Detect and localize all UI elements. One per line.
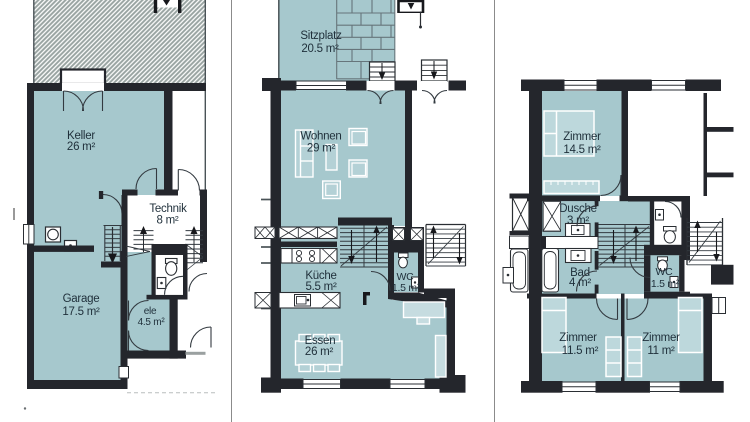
svg-text:Zimmer: Zimmer [642,332,680,344]
svg-text:29 m²: 29 m² [307,143,336,155]
svg-text:20.5 m²: 20.5 m² [301,43,339,55]
svg-text:Technik: Technik [149,203,187,215]
svg-text:Zimmer: Zimmer [559,332,597,344]
svg-text:Sitzplatz: Sitzplatz [300,30,342,42]
svg-text:11 m²: 11 m² [647,345,675,357]
svg-text:Garage: Garage [63,293,100,305]
svg-text:8 m²: 8 m² [157,215,179,227]
svg-text:Wohnen: Wohnen [300,131,341,143]
svg-text:4.5 m²: 4.5 m² [138,317,166,328]
svg-text:1.5 m²: 1.5 m² [651,278,680,290]
svg-text:WC: WC [656,266,674,278]
svg-text:1.5 m²: 1.5 m² [392,282,421,294]
svg-text:Dusche: Dusche [559,203,597,215]
svg-text:26 m²: 26 m² [67,141,96,153]
svg-text:ele: ele [144,306,157,317]
svg-text:Zimmer: Zimmer [563,131,601,143]
svg-text:11.5 m²: 11.5 m² [562,345,599,357]
svg-text:26 m²: 26 m² [305,346,334,358]
svg-text:14.5 m²: 14.5 m² [563,144,601,156]
svg-text:17.5 m²: 17.5 m² [62,306,100,318]
svg-text:5.5 m²: 5.5 m² [305,281,337,293]
